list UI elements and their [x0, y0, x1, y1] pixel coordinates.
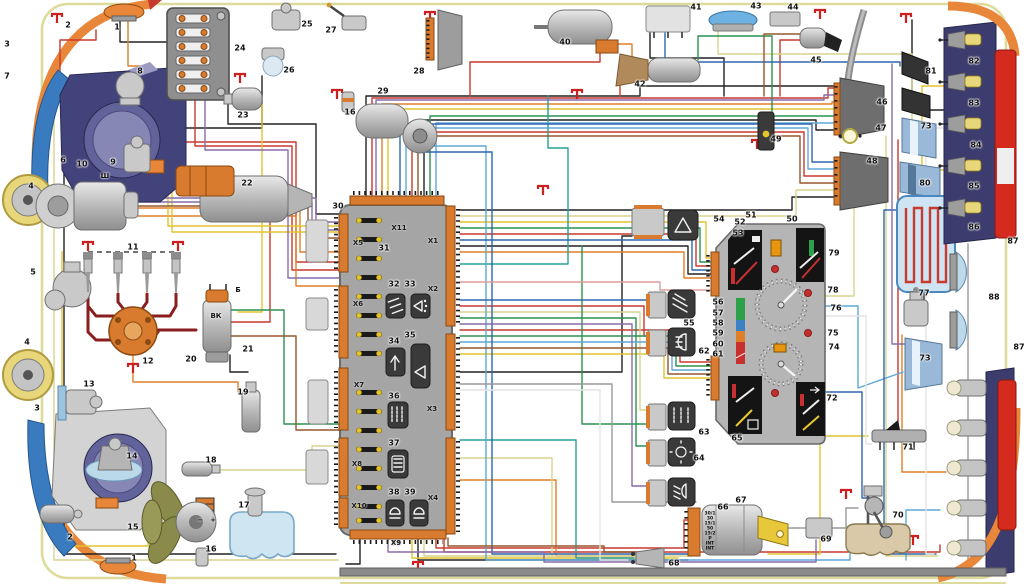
- ignition-lock-67[interactable]: [686, 505, 788, 556]
- instrument-cluster: [708, 224, 825, 444]
- diagram-canvas: [0, 0, 1024, 585]
- fuel-gauge: [728, 230, 762, 290]
- fuel-tank-sender-70: [846, 486, 910, 555]
- relay-44: [770, 12, 800, 26]
- oil-pressure-sensor-68: [631, 548, 664, 568]
- solenoid-valve-16-top: [342, 92, 354, 112]
- headlight-front-left-top: [32, 62, 186, 202]
- ignition-switch-45: [800, 28, 842, 52]
- econometer: [728, 376, 762, 434]
- ignition-coil: [203, 284, 231, 362]
- column-switch-46: [834, 78, 884, 138]
- side-marker-lamp-bottom: [100, 558, 136, 574]
- tail-lamp-cluster-right-top: [938, 6, 1016, 244]
- relay-38: [386, 500, 404, 526]
- switch-rear-defrost-63[interactable]: [646, 402, 695, 430]
- temp-gauge: [796, 228, 824, 282]
- odometer-window: [774, 344, 786, 352]
- switch-fog-light-66[interactable]: [646, 478, 695, 506]
- fuse-box: [167, 8, 229, 100]
- relay-37: [388, 450, 408, 478]
- horn-low-tone: [3, 350, 53, 400]
- temp-sensor-16-bottom: [196, 548, 208, 566]
- alternator: [36, 182, 138, 230]
- wiring-diagram: 1237610982425262327162829404143424445464…: [0, 0, 1024, 585]
- voltmeter: [796, 382, 825, 436]
- spark-plugs: [83, 252, 181, 292]
- relay-39: [410, 500, 428, 526]
- dome-lamp-80: [900, 162, 940, 198]
- relay-33: [411, 294, 430, 318]
- column-switch-48: [834, 152, 888, 210]
- washer-reservoir-17: [230, 488, 294, 559]
- relay-35: [411, 344, 430, 388]
- starter-solenoid: [176, 166, 234, 196]
- tail-lamp-cluster-right-bottom: [938, 368, 1016, 578]
- ground-bus-bar: [340, 568, 1006, 576]
- relay-32: [386, 294, 405, 318]
- brake-fluid-sensor-26: [262, 48, 284, 76]
- rear-bulbs: [947, 380, 986, 556]
- switch-heater-fan-55[interactable]: [646, 290, 695, 318]
- dome-lamp-73-bottom: [905, 338, 942, 390]
- steering-column-stalk: [848, 10, 864, 80]
- relay-36: [388, 402, 408, 428]
- ignition-distributor: [109, 307, 157, 355]
- central-mounting-block: [306, 193, 458, 542]
- horn-42: [616, 54, 700, 86]
- relay-34: [386, 348, 405, 376]
- switch-headlight-62[interactable]: [646, 328, 695, 356]
- underhood-lamp-switch-27: [327, 3, 366, 30]
- dome-lamp-73-top: [902, 118, 936, 158]
- brake-switch-49: [758, 112, 774, 150]
- connector-plate-28: [426, 10, 462, 70]
- warning-lamp-strip: [736, 298, 745, 364]
- fuel-pump-19: [242, 382, 260, 432]
- voltage-regulator-25: [272, 3, 300, 30]
- license-plate-lamps-88: [950, 252, 967, 350]
- relay-box-41: [646, 6, 690, 38]
- horn-relay: [116, 72, 144, 105]
- rocker-switch-71[interactable]: [872, 420, 926, 450]
- heater-fan-motor-40: [534, 10, 618, 53]
- courtesy-lamps-81: [902, 52, 930, 118]
- buzzer-69: [806, 518, 832, 538]
- charge-warning-lamp: [771, 240, 781, 256]
- wiper-motor-29: [356, 104, 437, 153]
- switch-parking-light-64[interactable]: [646, 438, 695, 466]
- dome-lamp-43: [709, 11, 757, 31]
- block-plug-housings: [306, 220, 328, 484]
- coolant-sensor-18: [182, 462, 220, 476]
